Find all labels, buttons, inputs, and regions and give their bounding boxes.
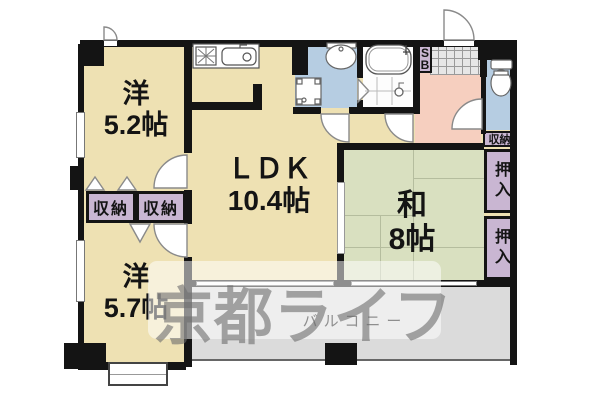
door-arc-west52-entry	[104, 27, 117, 40]
floorplan: 収納 収納 収納 押入 押入 SB	[0, 0, 600, 400]
washing-machine-pan-icon	[315, 79, 320, 84]
washing-machine-pan-icon	[315, 99, 320, 104]
label-room-west52: 洋 5.2帖	[86, 72, 186, 148]
shower-icon	[399, 83, 404, 88]
stove-icon	[196, 47, 216, 65]
room-name: 洋	[123, 262, 150, 293]
room-name: 和	[397, 189, 427, 224]
washing-machine-pan-icon	[302, 98, 306, 102]
folding-door-storage-icon	[118, 177, 136, 190]
door-arc-west52	[154, 155, 187, 188]
kitchen-faucet-icon	[243, 53, 251, 61]
washing-machine-pan-icon	[297, 99, 302, 104]
room-name: ＬＤＫ	[227, 153, 311, 185]
label-room-washitsu: 和 8帖	[372, 190, 452, 256]
label-room-ldk: ＬＤＫ 10.4帖	[198, 152, 340, 218]
door-arc-washroom	[321, 114, 349, 142]
door-arc-main-entrance	[444, 10, 474, 40]
shower-tile-icon	[365, 77, 411, 105]
door-arc-hall-ldk	[385, 114, 413, 142]
folding-door-storage-icon	[130, 224, 150, 242]
folding-door-storage-icon	[86, 177, 104, 190]
room-size: 10.4帖	[228, 185, 311, 217]
room-size: 5.2帖	[104, 110, 169, 141]
toilet-icon	[494, 71, 508, 75]
room-size: 8帖	[389, 223, 436, 258]
shower-icon	[395, 88, 403, 96]
toilet-icon	[491, 60, 512, 69]
room-name: 洋	[123, 79, 150, 110]
door-arc-west57	[154, 224, 187, 257]
washbasin-icon	[339, 47, 343, 51]
washing-machine-pan-icon	[297, 79, 302, 84]
door-arc-toilet	[452, 99, 482, 129]
watermark-text: 京都ライフ	[154, 266, 453, 356]
